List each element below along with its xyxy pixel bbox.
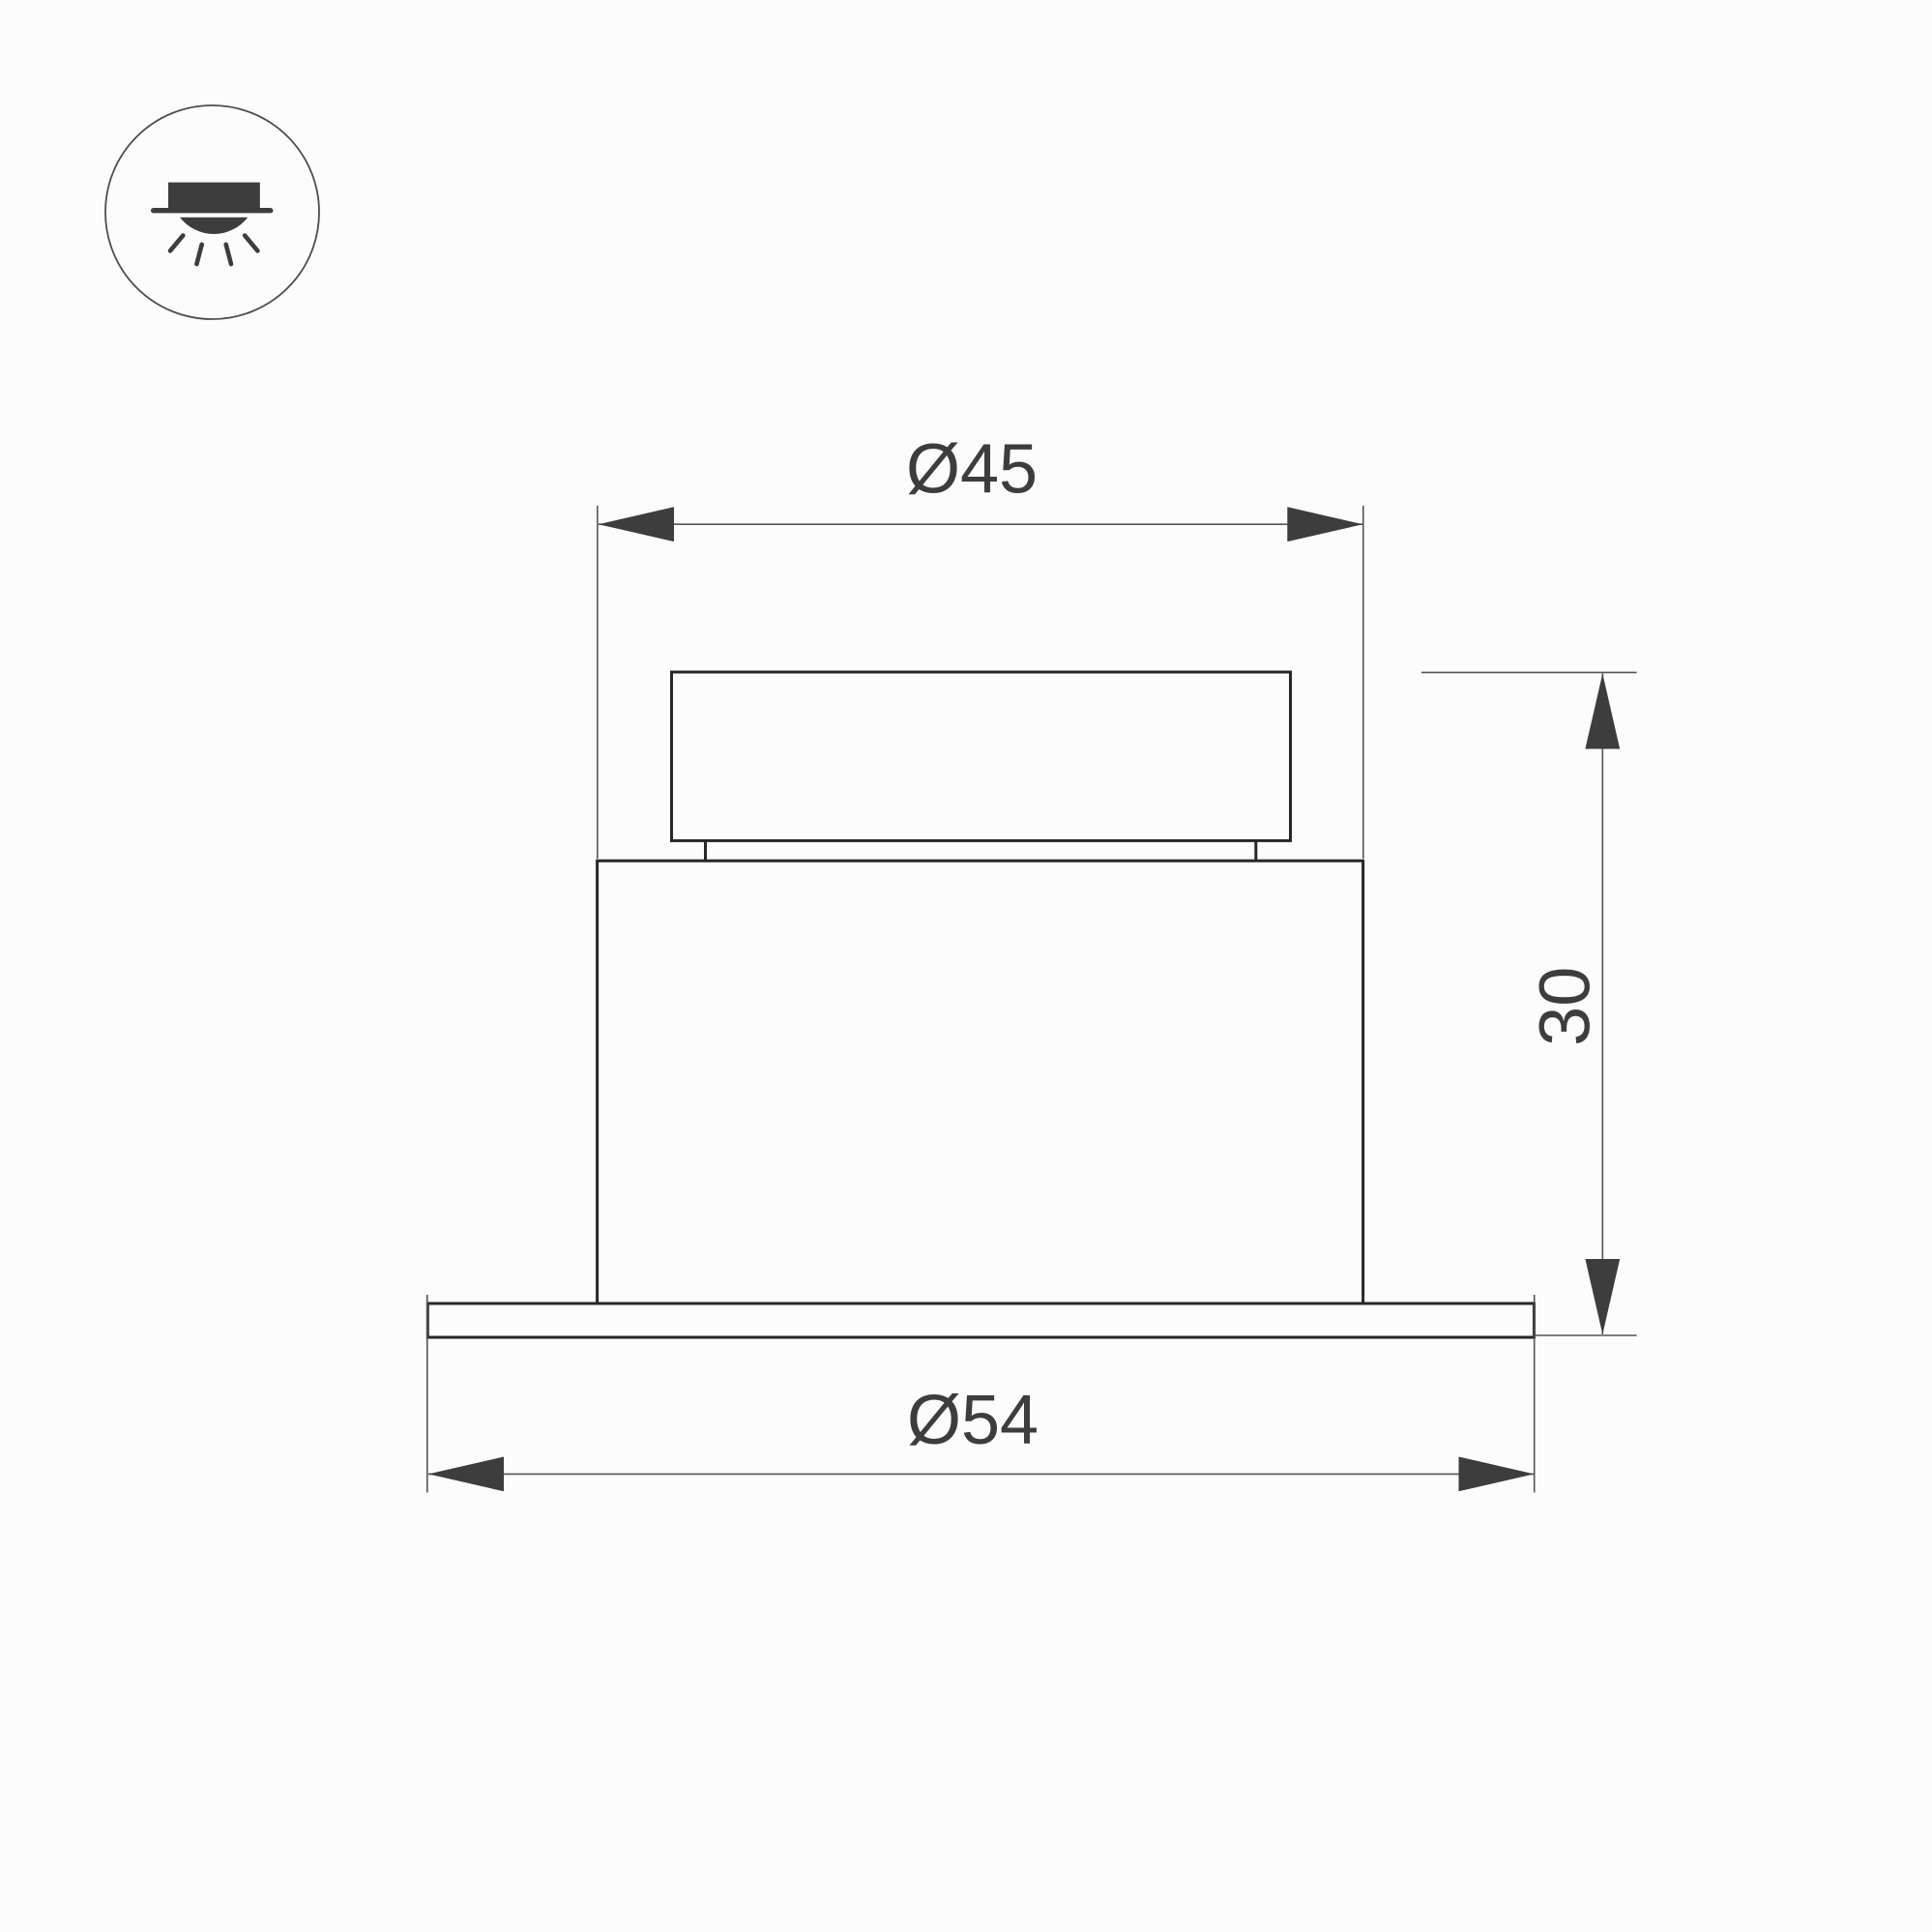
svg-text:Ø54: Ø54: [907, 1382, 1039, 1459]
svg-text:Ø45: Ø45: [906, 431, 1038, 509]
svg-text:30: 30: [1525, 967, 1605, 1046]
